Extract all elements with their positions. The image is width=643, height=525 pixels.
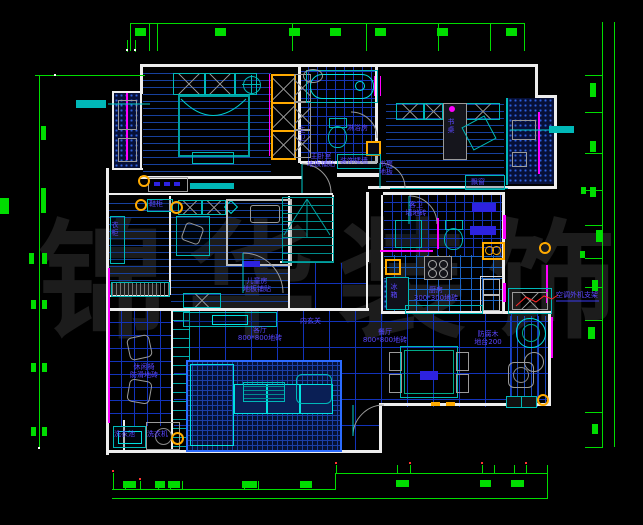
dimension-tick: [524, 23, 525, 51]
dimension-tick: [410, 465, 411, 473]
dimension-tick: [482, 465, 483, 473]
dimension-tick: [585, 258, 603, 259]
dimension-text-block: [29, 253, 34, 264]
label-deco-wall: 装饰矮墙: [340, 157, 368, 165]
dimension-text-block: [289, 28, 300, 36]
label-inner-hall: 内玄关: [300, 317, 321, 325]
dimension-text-block: [215, 28, 226, 36]
label-leisure-balcony: 休闲椅防滑地砖: [122, 363, 166, 379]
dimension-dot: [38, 447, 40, 449]
dimension-text-block: [330, 28, 341, 36]
dimension-line: [112, 489, 335, 490]
dimension-text-block: [581, 187, 586, 194]
dimension-text-block: [480, 480, 491, 487]
dimension-dot: [134, 49, 136, 51]
dimension-tick: [490, 23, 491, 51]
dimension-tick: [182, 481, 183, 489]
label-deck-balcony: 防腐木地台200: [466, 330, 510, 346]
dimension-text-block: [42, 427, 47, 436]
label-fridge: 冰箱: [390, 283, 398, 299]
dimension-text-block: [135, 28, 146, 36]
dimension-dot: [409, 462, 411, 464]
label-kids-room: 儿童房地板铺贴: [232, 277, 282, 293]
dimension-tick: [157, 23, 158, 51]
dimension-tick: [514, 465, 515, 473]
dimension-dot: [54, 74, 56, 76]
dimension-line: [112, 498, 548, 499]
label-living-room: 客厅800*800地砖: [230, 326, 290, 342]
dimension-dot: [126, 49, 128, 51]
dimension-line: [335, 473, 548, 474]
label-shoe-cabinet: 鞋柜: [149, 200, 163, 208]
dimension-text-block: [300, 481, 312, 488]
dimension-text-block: [590, 141, 596, 152]
dimension-tick: [585, 225, 603, 226]
label-desk: 书桌: [447, 118, 455, 134]
dimension-text-block: [596, 230, 603, 242]
dimension-text-block: [506, 28, 517, 36]
dimension-text-block: [41, 188, 46, 213]
dimension-text-block: [31, 427, 36, 436]
label-ac-bracket: 空调外机支架: [556, 291, 598, 299]
dimension-text-block: [511, 480, 524, 487]
dimension-layer: [0, 0, 643, 525]
label-master-bath: 主卫: [298, 126, 306, 142]
dimension-text-block: [590, 187, 596, 197]
dimension-line: [130, 23, 525, 24]
dimension-tick: [585, 75, 603, 76]
dimension-tick: [130, 23, 131, 51]
dimension-text-block: [41, 126, 46, 140]
dimension-text-block: [42, 300, 47, 309]
label-study: 书房地板: [372, 160, 400, 176]
dimension-tick: [547, 465, 548, 498]
dimension-line: [614, 22, 615, 447]
dimension-tick: [526, 465, 527, 473]
dimension-tick: [336, 465, 337, 473]
dimension-text-block: [123, 481, 136, 488]
dimension-text-block: [242, 481, 257, 488]
label-guest-bath: 客卫墙地砖: [394, 201, 438, 217]
dimension-dot: [139, 478, 141, 480]
dimension-tick: [585, 153, 603, 154]
dimension-tick: [585, 320, 603, 321]
label-kitchen: 厨房300*300地砖: [408, 286, 464, 302]
dimension-text-block: [375, 28, 386, 36]
label-laundry-sink: 洗衣池: [114, 430, 135, 438]
dimension-tick: [585, 112, 603, 113]
dimension-text-block: [42, 363, 47, 372]
dimension-tick: [397, 465, 398, 473]
dimension-text-block: [0, 198, 9, 214]
dimension-text-block: [592, 280, 598, 291]
label-washing-machine: 洗衣机: [147, 430, 168, 438]
dimension-text-block: [155, 481, 165, 488]
dimension-text-block: [31, 363, 36, 372]
dimension-tick: [366, 23, 367, 51]
dimension-tick: [140, 481, 141, 489]
dimension-text-block: [580, 251, 585, 258]
dimension-tick: [258, 481, 259, 489]
dimension-tick: [494, 465, 495, 473]
label-master-bedroom: 主卧室地板铺贴: [299, 152, 343, 168]
dimension-text-block: [437, 28, 448, 36]
label-shower: 淋浴房: [347, 124, 368, 132]
dimension-text-block: [31, 300, 36, 309]
dimension-text-block: [168, 481, 180, 488]
dimension-dot: [481, 462, 483, 464]
label-bay-window: 飘窗: [471, 178, 485, 186]
dimension-tick: [585, 447, 603, 448]
label-wardrobe: 衣柜: [111, 221, 119, 237]
dimension-line: [335, 473, 336, 490]
dimension-text-block: [42, 253, 47, 264]
dimension-tick: [585, 412, 603, 413]
dimension-text-block: [590, 83, 596, 97]
floorplan-canvas: 锦华装饰: [0, 0, 643, 525]
dimension-text-block: [592, 424, 598, 434]
dimension-line: [39, 75, 40, 448]
dimension-dot: [112, 470, 114, 472]
dimension-line: [35, 75, 145, 76]
dimension-text-block: [396, 480, 409, 487]
dimension-dot: [525, 462, 527, 464]
dimension-tick: [149, 23, 150, 51]
dimension-tick: [113, 473, 114, 489]
dimension-dot: [335, 462, 337, 464]
label-dining-room: 餐厅800*800地砖: [355, 328, 415, 344]
dimension-text-block: [588, 327, 595, 339]
